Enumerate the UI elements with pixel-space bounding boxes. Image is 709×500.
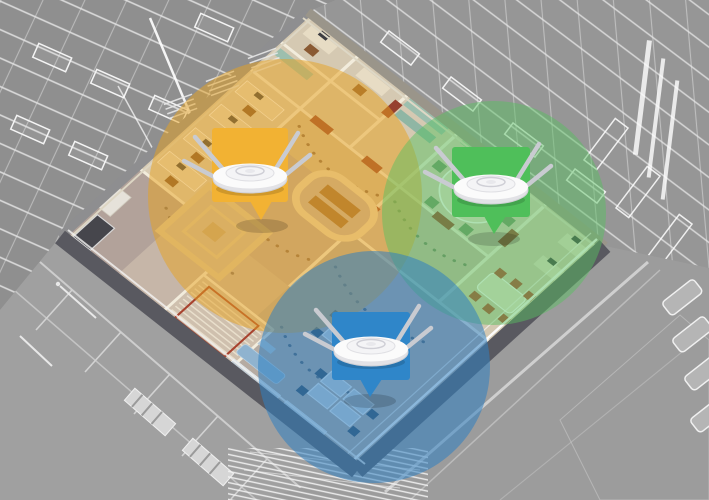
callout-shadow <box>236 219 288 233</box>
callout-shadow <box>468 232 520 246</box>
wifi-coverage-illustration <box>0 0 709 500</box>
illustration-canvas <box>0 0 709 500</box>
